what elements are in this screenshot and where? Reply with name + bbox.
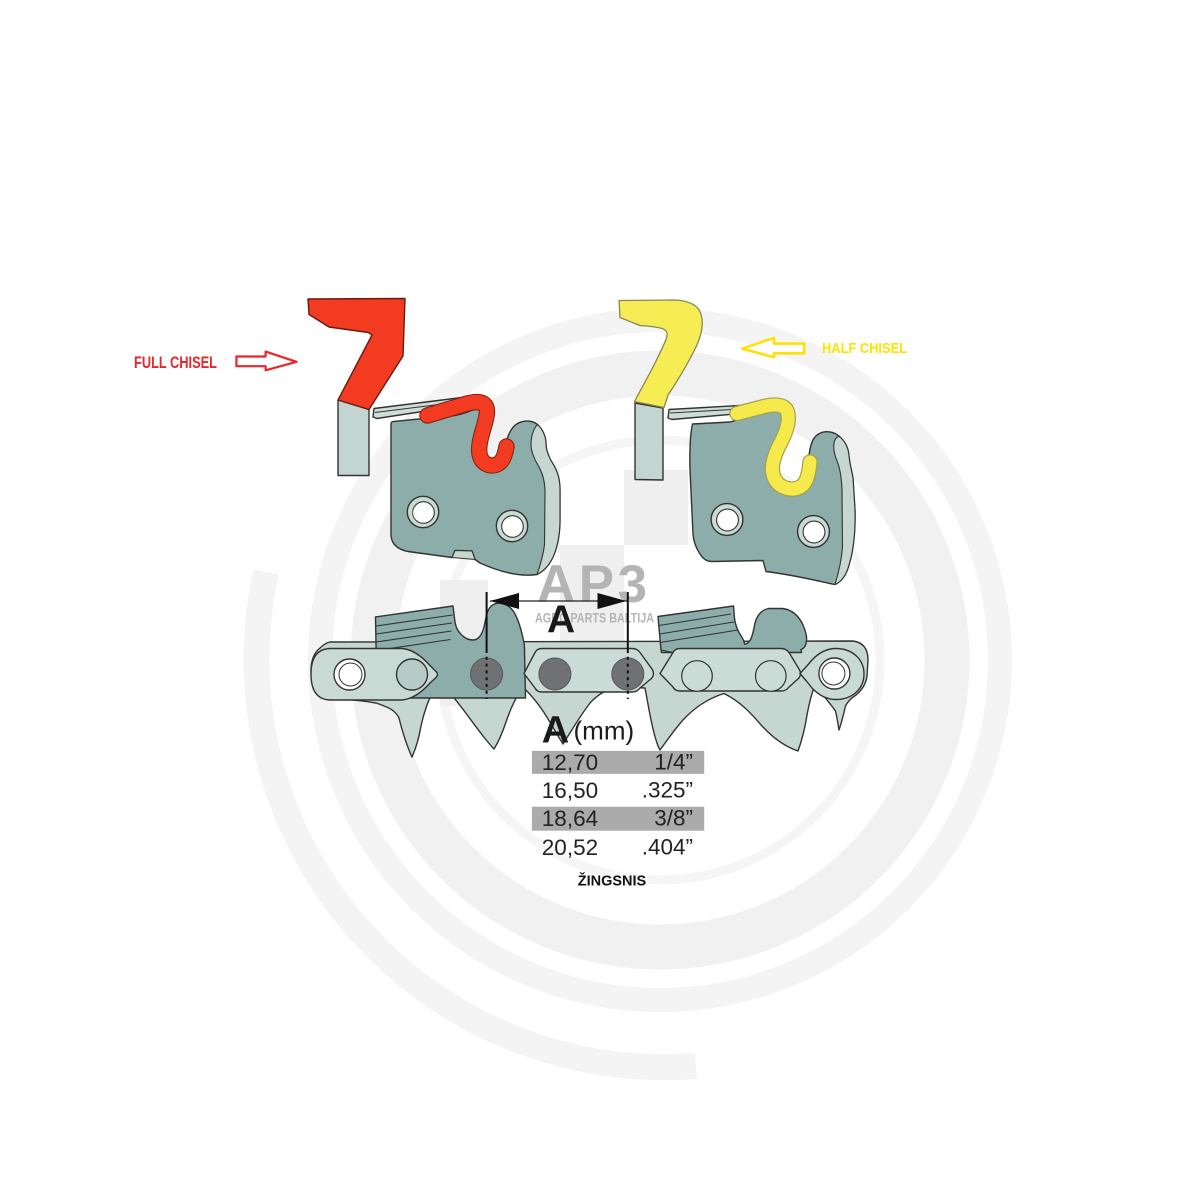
svg-text:.325”: .325” [642,777,693,802]
svg-text:A: A [547,599,575,642]
svg-text:3/8”: 3/8” [654,806,693,831]
svg-text:18,64: 18,64 [542,806,598,831]
svg-text:HALF CHISEL: HALF CHISEL [822,340,907,357]
svg-text:.404”: .404” [642,834,693,859]
svg-text:(mm): (mm) [574,716,635,746]
svg-text:20,52: 20,52 [542,835,598,860]
svg-text:12,70: 12,70 [542,750,598,775]
svg-text:A: A [542,710,569,752]
svg-text:FULL CHISEL: FULL CHISEL [134,353,217,372]
svg-text:16,50: 16,50 [542,778,598,803]
svg-text:ŽINGSNIS: ŽINGSNIS [578,872,647,890]
svg-text:1/4”: 1/4” [654,749,693,774]
